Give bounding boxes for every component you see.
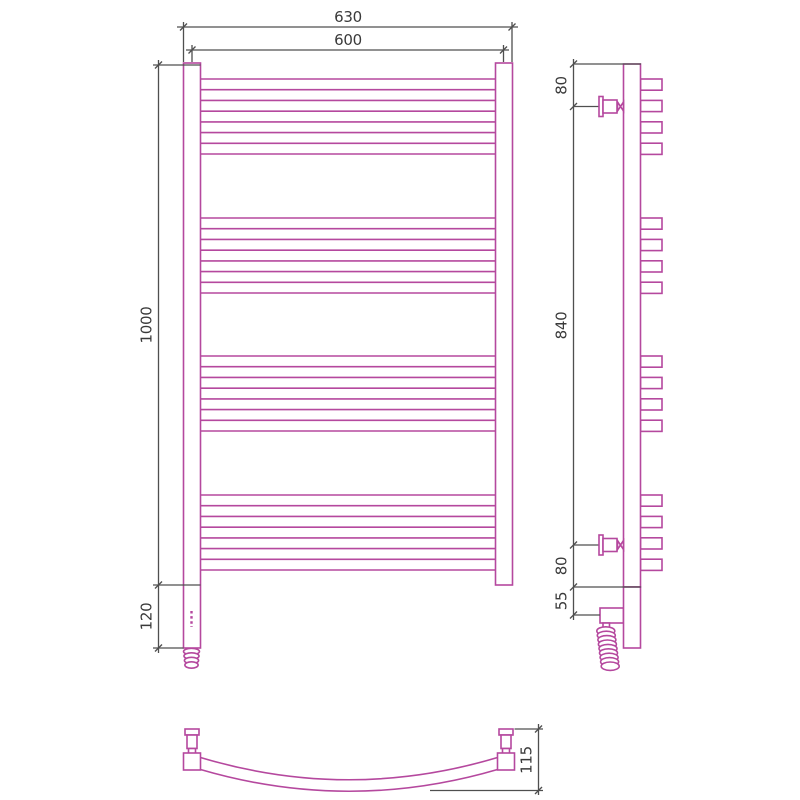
side-rung-stub (641, 538, 663, 549)
front-view: 630 600 1000 120 (138, 8, 519, 668)
bracket-body (187, 735, 197, 749)
dim-label-bottom-extension: 120 (138, 603, 156, 631)
dimension-axis-width: 600 (186, 31, 509, 62)
side-rung-stub (641, 261, 663, 272)
side-rung-stubs (641, 79, 663, 570)
side-collector-lower (624, 587, 641, 648)
side-collector-main (624, 64, 641, 587)
side-rung-stub (641, 282, 663, 293)
cable-coil-turn (601, 662, 619, 670)
side-view: 80 840 80 55 (553, 59, 663, 670)
dim-label-bottom-bracket-offset: 80 (553, 557, 571, 576)
front-rung-tubes (201, 79, 496, 570)
wall-bracket-top (573, 97, 624, 117)
side-rung-stub (641, 399, 663, 410)
towel-radiator-technical-drawing: 630 600 1000 120 (0, 0, 800, 800)
dim-label-overall-width: 630 (334, 8, 362, 26)
bracket-valve (618, 102, 624, 111)
side-rung-stub (641, 100, 663, 111)
bracket-body (501, 735, 511, 749)
drawing-canvas: 630 600 1000 120 (0, 0, 800, 800)
dimension-curve-depth: 115 (430, 724, 543, 795)
bracket-body (603, 539, 617, 552)
front-threaded-end (184, 648, 200, 668)
bracket-valve (618, 541, 624, 550)
front-left-collector (184, 63, 201, 648)
side-rung-stub (641, 239, 663, 250)
side-rung-stub (641, 122, 663, 133)
side-rung-stub (641, 143, 663, 154)
side-rung-stub (641, 516, 663, 527)
dim-label-axis-width: 600 (334, 31, 362, 49)
bottom-right-collector-section (498, 753, 515, 770)
bottom-left-bracket (185, 729, 199, 754)
side-rung-stub (641, 377, 663, 388)
bracket-body (603, 100, 617, 113)
dim-label-lower-section: 55 (553, 592, 571, 611)
bracket-flange (499, 729, 513, 735)
side-rung-stub (641, 218, 663, 229)
bottom-right-bracket (499, 729, 513, 754)
power-cable-coil (597, 627, 619, 671)
dim-label-curve-depth: 115 (518, 746, 536, 774)
dim-label-height: 1000 (138, 307, 156, 344)
bottom-view: 115 (184, 724, 544, 795)
side-rung-stub (641, 79, 663, 90)
side-rung-stub (641, 495, 663, 506)
side-rung-stub (641, 420, 663, 431)
curved-tube-front-edge (201, 758, 498, 780)
bracket-flange (185, 729, 199, 735)
wall-bracket-bottom (573, 535, 624, 555)
dim-label-top-bracket-offset: 80 (553, 76, 571, 95)
bottom-left-collector-section (184, 753, 201, 770)
front-right-collector (496, 63, 513, 585)
dim-label-bracket-span: 840 (553, 312, 571, 340)
side-rung-stub (641, 356, 663, 367)
thread-ring (185, 662, 198, 668)
electric-heating-element (600, 608, 624, 623)
side-rung-stub (641, 559, 663, 570)
